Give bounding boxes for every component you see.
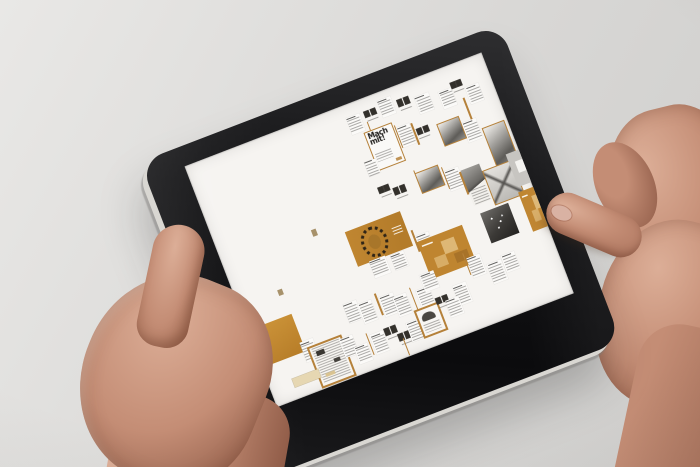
thumbnail-beige-strip [292, 369, 322, 388]
flatplan-page-mark [311, 229, 318, 237]
thumbnail-text-spread[interactable] [377, 96, 397, 118]
flatplan-page-mark [277, 289, 284, 297]
thumbnail-night-spread[interactable] [480, 203, 519, 244]
thumbnail-photo-pair-spread[interactable] [396, 96, 412, 113]
thumbnail-text-spread[interactable] [462, 118, 483, 142]
photo-scene: Machmit! [0, 0, 700, 467]
thumbnail-text-spread[interactable] [465, 83, 485, 105]
thumbnail-text-spread[interactable] [346, 113, 366, 135]
thumbnail-text-spread[interactable] [393, 293, 414, 317]
thumbnail-photo-pair-spread[interactable] [377, 183, 393, 200]
thumbnail-text-spread[interactable] [358, 299, 379, 323]
thumbnail-text-spread[interactable] [414, 92, 435, 115]
thumbnail-photo-pair-spread[interactable] [392, 184, 408, 201]
thumbnail-text-spread[interactable] [390, 251, 409, 271]
thumbnail-framed-photo[interactable] [436, 116, 467, 147]
thumbnail-photo-pair-spread[interactable] [363, 107, 379, 124]
